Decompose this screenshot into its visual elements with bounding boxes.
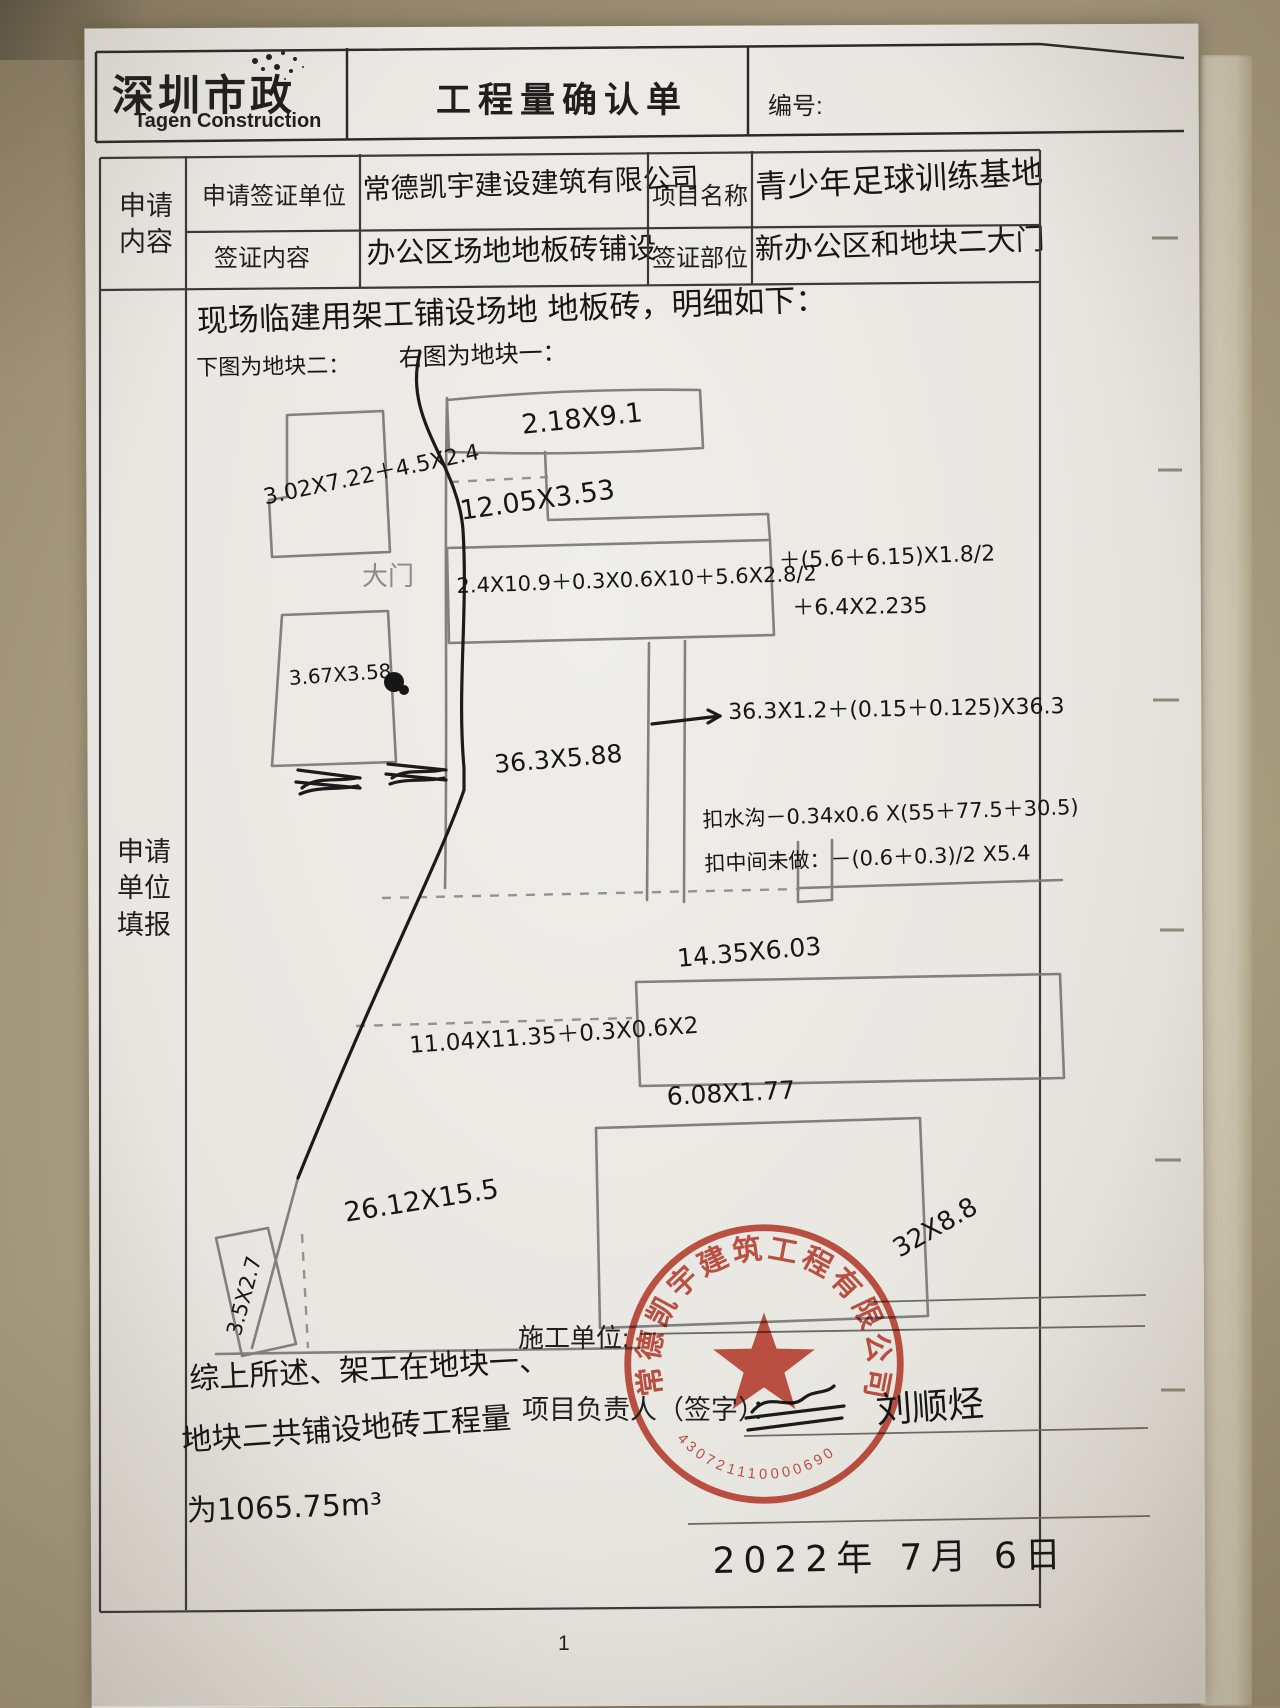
row-label-application: 申请内容 (114, 188, 178, 261)
field-label-location: 签证部位 (652, 238, 748, 273)
dim-strip-formula: 36.3X1.2＋(0.15＋0.125)X36.3 (728, 688, 1065, 726)
company-stamp: 常德凯宇建筑工程有限公司 430721110000690 (618, 1218, 910, 1510)
manager-label: 项目负责人（签字）： (522, 1388, 779, 1427)
scanned-form-photo: { "header": { "logo_cn": "深圳市政", "logo_e… (0, 0, 1280, 1706)
manager-signature: 刘顺烃 (874, 1374, 985, 1433)
underlying-page-edge (1200, 55, 1252, 1706)
intro-line-2-left: 下图为地块二： (196, 347, 351, 382)
logo-text-en: Tagen Construction (134, 110, 321, 133)
section-label-applicant: 申请单位填报 (112, 834, 176, 943)
date-handwritten: 2022年 7月 6日 (712, 1526, 1069, 1584)
field-label-content: 签证内容 (214, 238, 310, 273)
photo-background: 深圳市政 Tagen Construction 工程量确认单 编号: 申请内容 … (0, 0, 1280, 1706)
gate-label: 大门 (362, 556, 414, 593)
svg-text:430721110000690: 430721110000690 (674, 1431, 840, 1483)
dim-bar-formula-3: ＋6.4X2.235 (792, 588, 928, 622)
intro-line-2-right: 右图为地块一： (398, 332, 567, 373)
summary-line-3: 为1065.75m³ (186, 1479, 383, 1530)
field-value-content: 办公区场地地板砖铺设 (366, 225, 657, 272)
form-no-label: 编号: (768, 86, 823, 121)
field-label-unit: 申请签证单位 (202, 176, 346, 211)
page-number: 1 (558, 1632, 570, 1656)
logo-speckle-icon (252, 58, 258, 64)
form-title: 工程量确认单 (436, 72, 688, 123)
